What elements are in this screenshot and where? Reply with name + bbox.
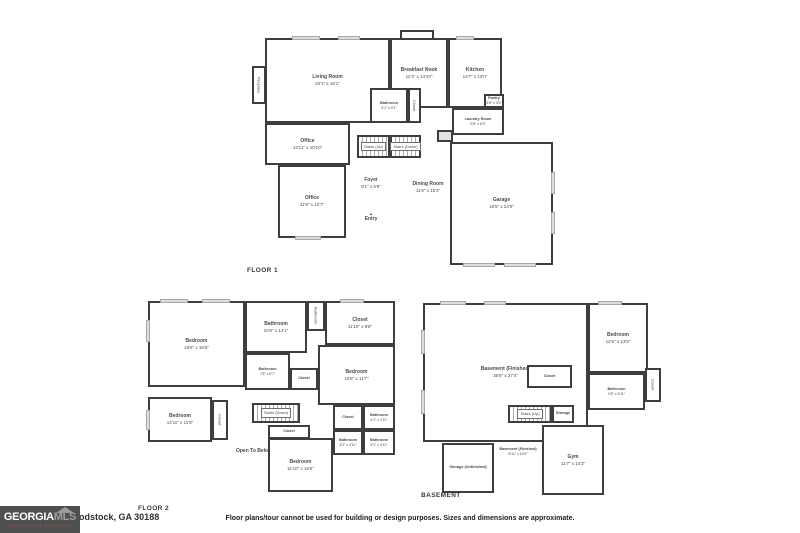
stairs-down-f1: Stairs (Down): [390, 135, 421, 158]
room-storage-1: Storage: [552, 405, 574, 423]
room-garage: Garage 19'5" x 24'0": [450, 142, 553, 265]
stairs-up-f1: Stairs (Up): [357, 135, 390, 158]
room-bedroom-1: Bedroom 19'6" x 16'6": [148, 301, 245, 387]
area-foyer: Foyer 9'1" x 6'9": [348, 172, 394, 194]
window-marker: [292, 36, 320, 40]
window-marker: [598, 301, 622, 305]
room-fireplace: Fireplace: [252, 66, 266, 104]
window-marker: [440, 301, 466, 305]
window-marker: [421, 390, 425, 414]
area-basement-finished-2: Basement (Finished) 8'11" x 14'0": [492, 443, 544, 461]
basement-label: BASEMENT: [421, 492, 461, 499]
room-bathroom-2: Bathroom 7'6" x 6'7": [245, 353, 290, 390]
logo-tagline: REAL ESTATE SERVICES: [10, 524, 70, 528]
room-bathroom-f1: Bathroom 5'1" x 5'1": [370, 88, 408, 123]
window-marker: [551, 212, 555, 234]
window-marker: [160, 299, 188, 303]
room-bathroom-5: Bathroom 5'1" x 4'11": [363, 430, 395, 455]
room-gym: Gym 11'7" x 14'3": [542, 425, 604, 495]
room-office-2: Office 11'8" x 12'7": [278, 165, 346, 238]
room-storage-unfinished: Storage (Unfinished): [442, 443, 494, 493]
floor2-label: FLOOR 2: [138, 505, 169, 512]
room-bedroom-4: Bedroom 11'10" x 15'6": [268, 438, 333, 492]
garage-steps: [437, 130, 453, 142]
room-bathroom-4: Bathroom 5'2" x 4'11": [333, 430, 363, 455]
room-closet-1-f2: Closet 11'10" x 8'8": [325, 301, 395, 345]
room-bathroom-3: Bathroom 5'1" x 4'11": [363, 405, 395, 430]
logo-text-georgia: GEORGIA: [4, 512, 54, 523]
garage-door-marker: [463, 263, 495, 267]
window-marker: [202, 299, 230, 303]
area-dining-room: Dining Room 11'8" x 15'2": [400, 175, 456, 199]
window-marker: [456, 36, 474, 40]
room-bathroom-small: Bathroom: [307, 301, 325, 331]
window-marker: [146, 410, 150, 430]
window-marker: [340, 299, 364, 303]
window-marker: [484, 301, 506, 305]
floor-plan-sheet: Fireplace Living Room 20'1" x 16'1" Brea…: [0, 0, 800, 533]
floor1-label: FLOOR 1: [247, 267, 278, 274]
room-closet-4-f2: Closet: [268, 425, 310, 439]
logo-text-mls: MLS: [54, 512, 76, 523]
room-closet-1-b: Closet: [527, 365, 572, 388]
room-bathroom-b: Bathroom 9'8" x 5'11": [588, 373, 645, 410]
window-marker: [551, 172, 555, 194]
window-marker: [146, 320, 150, 342]
georgia-mls-logo: GEORGIAMLS REAL ESTATE SERVICES: [0, 506, 80, 533]
room-bedroom-2: Bedroom 15'8" x 11'7": [318, 345, 395, 405]
room-closet-2-f2: Closet: [290, 368, 318, 390]
room-closet-f1: Closet: [408, 88, 421, 123]
logo-brand: GEORGIAMLS: [4, 512, 76, 523]
area-entry: ▲ Entry: [350, 203, 392, 231]
room-closet-2-b: Closet: [645, 368, 661, 402]
room-bedroom-b: Bedroom 12'6" x 13'5": [588, 303, 648, 373]
room-bathroom-1: Bathroom 10'6" x 14'1": [245, 301, 307, 353]
garage-door-marker: [504, 263, 536, 267]
stairs-down-f2: Stairs (Down): [252, 403, 300, 423]
room-office-1: Office 14'11" x 10'10": [265, 123, 350, 165]
room-closet-5-f2: Closet: [333, 405, 363, 430]
window-marker: [295, 236, 321, 240]
disclaimer-text: Floor plans/tour cannot be used for buil…: [0, 515, 800, 522]
room-laundry: Laundry Room 9'8" x 6'3": [452, 108, 504, 135]
room-pantry: Pantry 5'6" x 3'9": [484, 94, 504, 108]
window-marker: [338, 36, 360, 40]
room-bedroom-3: Bedroom 14'11" x 11'8": [148, 397, 212, 442]
window-marker: [421, 330, 425, 354]
room-closet-3-f2: Closet: [212, 400, 228, 440]
stairs-up-basement: Stairs (Up): [508, 405, 552, 423]
logo-roof-icon: [56, 507, 74, 513]
